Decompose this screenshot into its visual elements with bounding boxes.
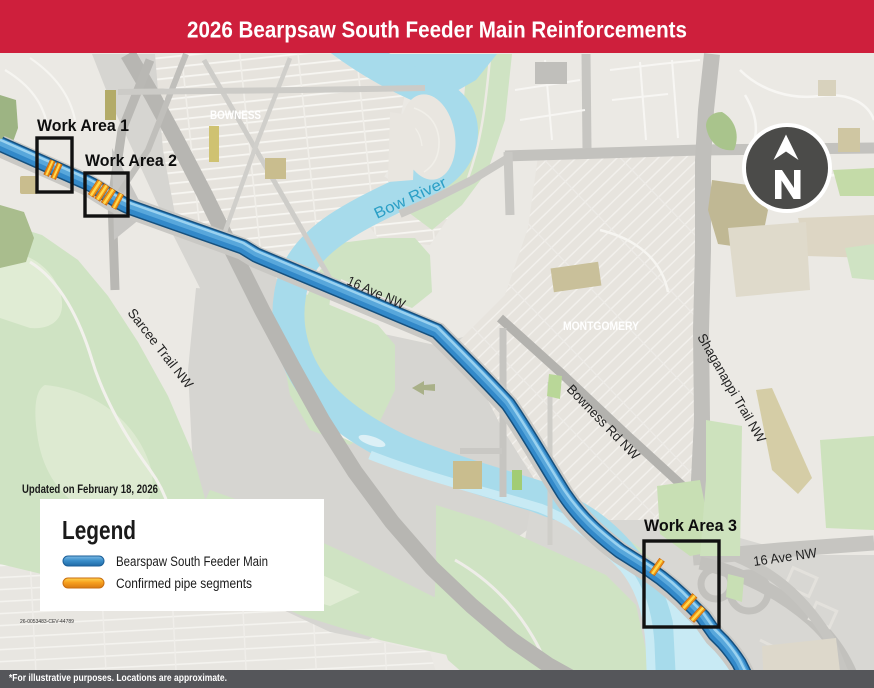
svg-text:Work Area 3: Work Area 3	[644, 516, 737, 535]
svg-text:2026 Bearpsaw South Feeder Mai: 2026 Bearpsaw South Feeder Main Reinforc…	[187, 17, 687, 43]
svg-text:Updated on February 18, 2026: Updated on February 18, 2026	[22, 484, 158, 496]
svg-text:26-0053483-CEV-44789: 26-0053483-CEV-44789	[20, 619, 74, 625]
svg-text:Work Area 2: Work Area 2	[85, 151, 177, 170]
svg-text:BOWNESS: BOWNESS	[210, 108, 261, 122]
svg-text:Work Area 1: Work Area 1	[37, 116, 129, 135]
svg-text:Bearspaw South Feeder Main: Bearspaw South Feeder Main	[116, 554, 268, 569]
svg-text:Confirmed pipe segments: Confirmed pipe segments	[116, 576, 252, 591]
svg-text:*For illustrative purposes. Lo: *For illustrative purposes. Locations ar…	[9, 672, 227, 684]
svg-text:MONTGOMERY: MONTGOMERY	[563, 319, 639, 333]
svg-text:Legend: Legend	[62, 515, 136, 545]
